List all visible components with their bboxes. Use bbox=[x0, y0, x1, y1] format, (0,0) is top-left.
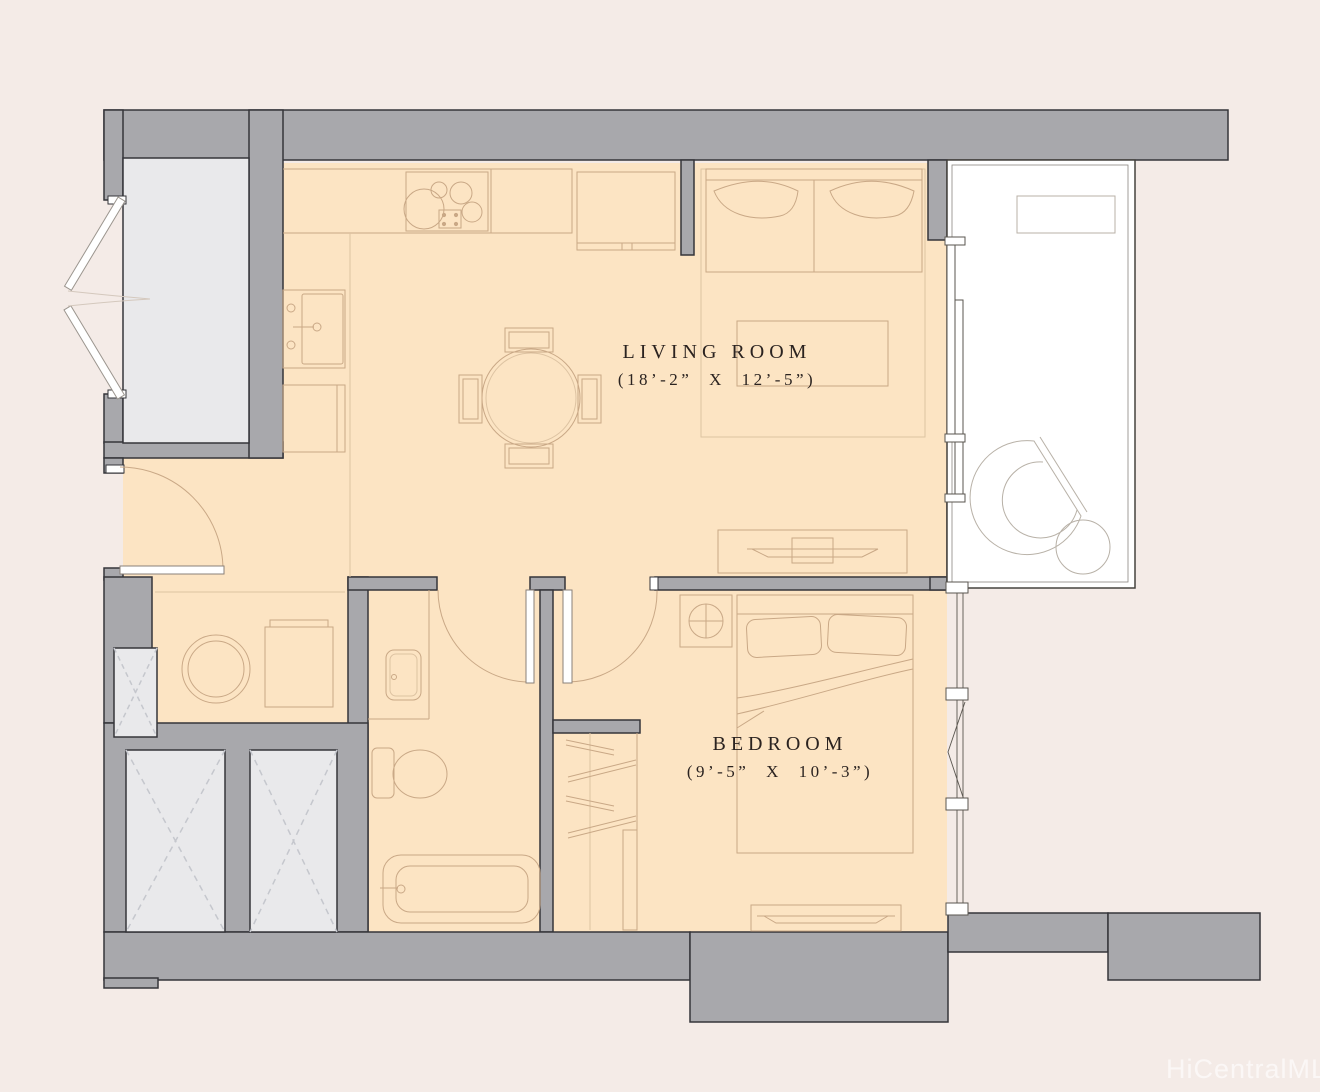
floor-bathroom-doorway bbox=[437, 577, 530, 590]
wall-closet-north bbox=[553, 720, 640, 733]
lanai bbox=[947, 160, 1135, 588]
door-leaf bbox=[563, 590, 572, 683]
louver-door-panel bbox=[65, 197, 125, 290]
floor-main-living bbox=[283, 163, 947, 577]
wall-south-deep bbox=[690, 932, 948, 1022]
watermark: HiCentralMLS bbox=[1166, 1054, 1320, 1085]
wall-stub-bedroom-corner bbox=[930, 577, 947, 590]
door-track-cap bbox=[945, 434, 965, 442]
floor-laundry bbox=[150, 577, 348, 723]
louver-door-panel bbox=[64, 306, 124, 399]
floorplan-canvas: LIVING ROOM (18’-2” X 12’-5”) BEDROOM (9… bbox=[0, 0, 1320, 1092]
window-sill bbox=[946, 798, 968, 810]
wall-southeast-block bbox=[1108, 913, 1260, 980]
window-sill bbox=[946, 903, 968, 915]
entry-closet-room bbox=[123, 158, 249, 443]
wall-bedroom-south bbox=[948, 913, 1108, 952]
floor-bedroom-doorway bbox=[565, 577, 655, 590]
floor-entry-hall bbox=[123, 455, 283, 577]
door-track-cap bbox=[945, 494, 965, 502]
floor-bedroom bbox=[660, 590, 947, 932]
bedroom-window bbox=[946, 582, 968, 915]
lanai-deck bbox=[947, 160, 1135, 588]
door-track-cap bbox=[945, 237, 965, 245]
window-sill bbox=[946, 688, 968, 700]
sliding-door-panel bbox=[947, 242, 955, 440]
wall-south-main bbox=[104, 932, 690, 980]
wall-west-upper bbox=[104, 110, 123, 200]
door-leaf bbox=[120, 566, 224, 574]
wall-end-cap bbox=[650, 577, 658, 590]
wall-south-left-step bbox=[104, 978, 158, 988]
sliding-door-panel bbox=[955, 300, 963, 502]
wall-west-mid bbox=[104, 394, 123, 443]
window-opening-chevron bbox=[948, 702, 965, 803]
wall-kitchen-west bbox=[249, 110, 283, 458]
floorplan-drawing bbox=[0, 0, 1320, 1092]
wall-stub-lanai-top bbox=[928, 160, 947, 240]
mechanical-shaft-small bbox=[114, 648, 157, 737]
elevator-shaft-left bbox=[126, 750, 225, 932]
wall-stub-kitchen bbox=[681, 160, 694, 255]
door-leaf bbox=[526, 590, 534, 683]
wall-bedroom-divider bbox=[655, 577, 950, 590]
window-sill bbox=[946, 582, 968, 593]
wall-bath-east bbox=[540, 590, 553, 932]
wall-bath-north bbox=[348, 577, 437, 590]
elevator-shaft-right bbox=[250, 750, 337, 932]
wall-stub-between-doors bbox=[530, 577, 565, 590]
